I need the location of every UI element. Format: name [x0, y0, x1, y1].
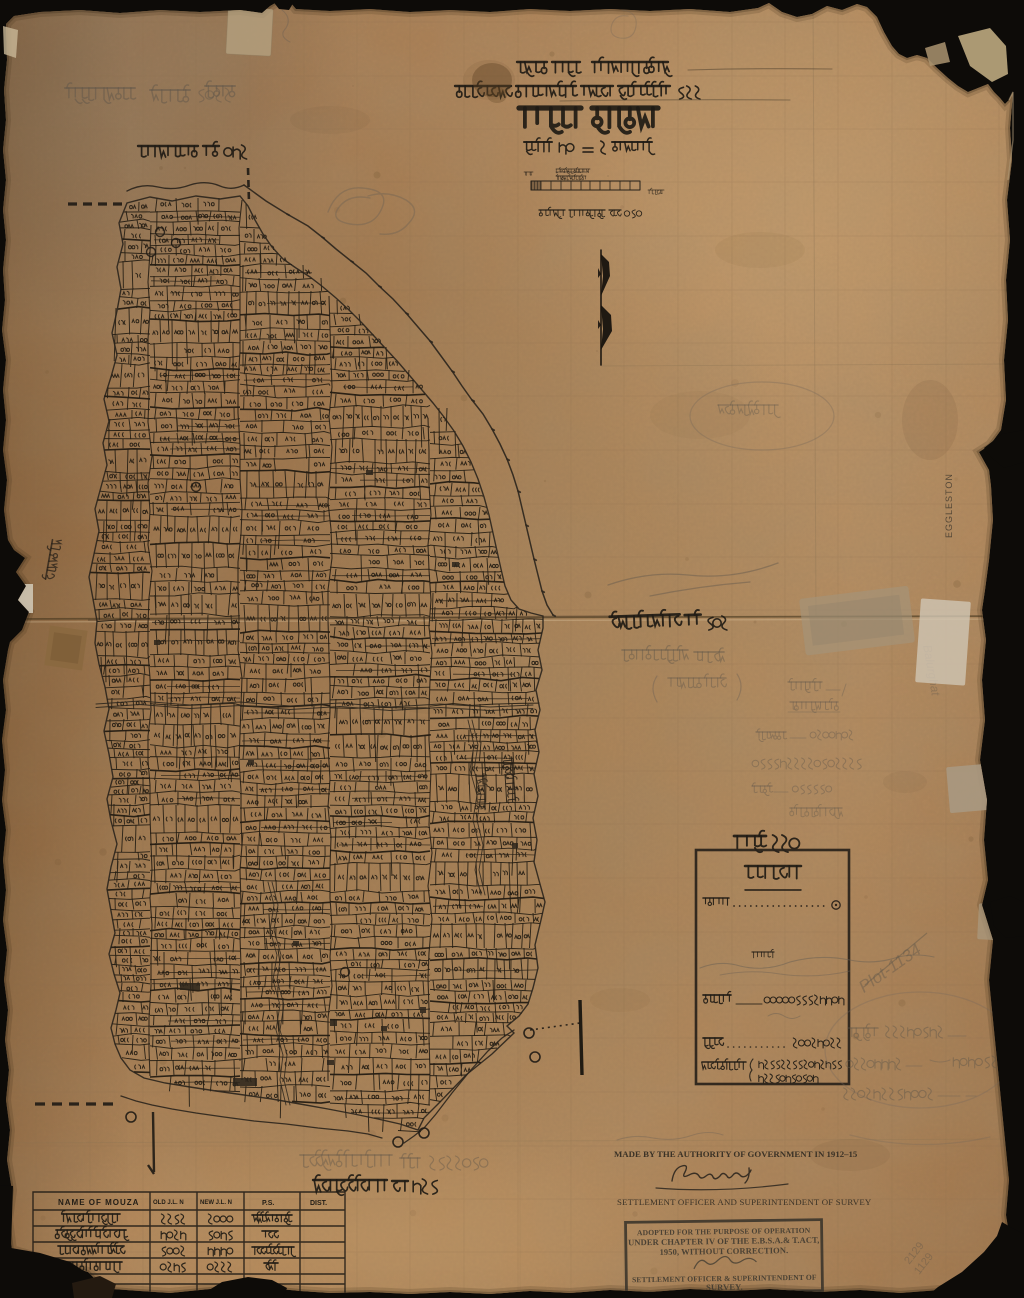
svg-text:NAME OF MOUZA: NAME OF MOUZA — [58, 1198, 139, 1207]
svg-text:MADE BY THE AUTHORITY OF GOVER: MADE BY THE AUTHORITY OF GOVERNMENT IN 1… — [614, 1149, 858, 1159]
svg-text:SETTLEMENT OFFICER AND SUPERIN: SETTLEMENT OFFICER AND SUPERINTENDENT OF… — [617, 1197, 872, 1207]
svg-text:DIST.: DIST. — [310, 1200, 327, 1207]
svg-text:1950, WITHOUT CORRECTION.: 1950, WITHOUT CORRECTION. — [659, 1245, 788, 1257]
svg-text:OLD J.L. N: OLD J.L. N — [153, 1200, 184, 1206]
svg-text:EGGLESTON: EGGLESTON — [944, 473, 954, 538]
svg-text:P.S.: P.S. — [262, 1200, 274, 1207]
svg-text:NEW J.L. N: NEW J.L. N — [200, 1200, 232, 1206]
